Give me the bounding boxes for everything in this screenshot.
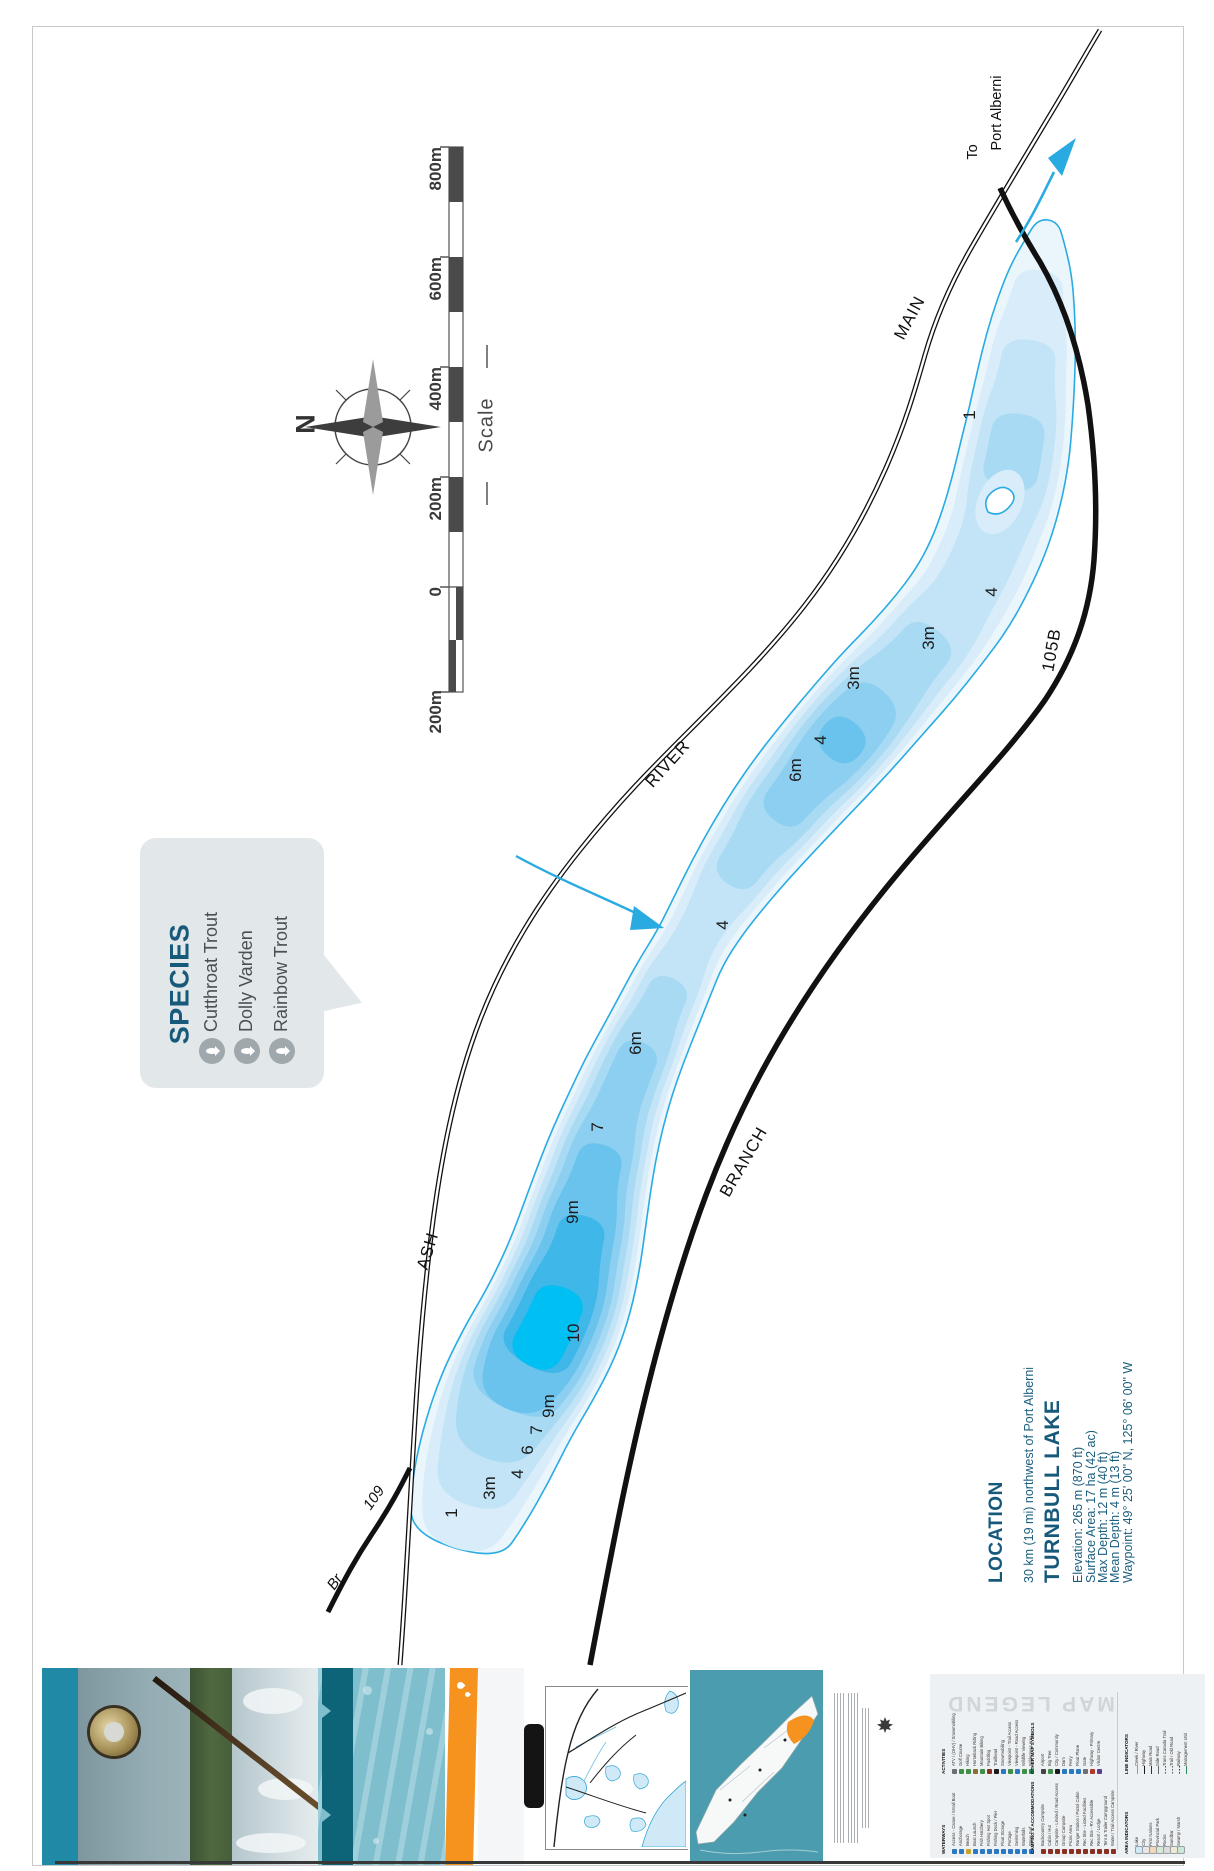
legend-item: Water / Trail Access Campsite bbox=[1110, 1775, 1117, 1855]
scale-tick-label: 400m bbox=[426, 367, 446, 410]
legend-item-icon bbox=[1165, 1766, 1167, 1774]
legend-item: Viewpoint - Road Access bbox=[1014, 1695, 1021, 1775]
legend-item-label: Backcountry Campsite bbox=[1040, 1804, 1045, 1846]
dmap-great-central-lake bbox=[642, 1781, 686, 1847]
legend-item: Fishing Dock / Pier bbox=[993, 1775, 1000, 1855]
legend-item: Picnic Area bbox=[1068, 1775, 1075, 1855]
cloud bbox=[243, 1688, 303, 1714]
legend-item-label: Lake bbox=[1134, 1837, 1139, 1846]
legend-item: Creek / River bbox=[1134, 1695, 1141, 1775]
legend-item-icon bbox=[987, 1769, 992, 1774]
legend-item-icon bbox=[1097, 1769, 1102, 1774]
legend-item-label: Swamp / Marsh bbox=[1176, 1817, 1181, 1846]
legend-item-label: Mountain Biking bbox=[979, 1736, 984, 1766]
legend-item-icon bbox=[1144, 1766, 1146, 1774]
legend-item-icon bbox=[1177, 1846, 1185, 1854]
legend-item: Tent & Trailer Campground bbox=[1103, 1775, 1110, 1855]
legend-item-icon bbox=[973, 1769, 978, 1774]
legend-item-label: Picnic Area bbox=[1068, 1825, 1073, 1846]
scale-label: Scale bbox=[476, 397, 499, 452]
legend-item-icon bbox=[1022, 1849, 1027, 1854]
legend-item: Highway - Primary bbox=[1089, 1695, 1096, 1775]
legend-section-header: CAMPING & ACCOMMODATIONS bbox=[1030, 1775, 1040, 1855]
legend-item-label: Hiking bbox=[965, 1754, 970, 1766]
photo-treeline bbox=[190, 1668, 232, 1865]
dmap-moran-lake bbox=[665, 1691, 679, 1713]
fish-icon bbox=[269, 1038, 295, 1064]
legend-item: Main Road bbox=[1148, 1695, 1155, 1775]
legend-item-label: Trailhead bbox=[993, 1749, 998, 1766]
disclaimer-text-block bbox=[834, 1693, 845, 1843]
legend-section-header: WATERWAYS bbox=[941, 1775, 951, 1855]
dmap-dickson-lake bbox=[634, 1774, 649, 1789]
legend-item: Horseback Riding bbox=[972, 1695, 979, 1775]
legend-item-label: Access - Canoe / Small Boat bbox=[951, 1793, 956, 1846]
scale-tick-label: 200m bbox=[426, 690, 446, 733]
outlet-arrow-icon bbox=[1048, 138, 1076, 176]
legend-item-label: Beach bbox=[965, 1834, 970, 1846]
legend-item-icon bbox=[1151, 1766, 1153, 1774]
legend-item-label: ATV / (OHV) / Snowmobiling bbox=[951, 1713, 956, 1766]
legend-item-label: Campsite - Limited / Road Access bbox=[1054, 1783, 1059, 1846]
legend-item-icon bbox=[1090, 1849, 1095, 1854]
legend-item-icon bbox=[1179, 1766, 1181, 1774]
legend-item-icon bbox=[973, 1849, 978, 1854]
species-item: Dolly Varden bbox=[230, 852, 264, 1064]
maple-leaf-icon bbox=[876, 1716, 894, 1734]
legend-item-label: Gate bbox=[1082, 1757, 1087, 1766]
legend-item-label: Visitor Centre bbox=[1096, 1741, 1101, 1766]
inlet-arrow-icon bbox=[630, 906, 664, 930]
legend-item-label: Water / Trail Access Campsite bbox=[1110, 1790, 1115, 1846]
legend-item-icon bbox=[952, 1849, 957, 1854]
species-name: Dolly Varden bbox=[236, 930, 257, 1032]
dmap-ash-lake bbox=[606, 1766, 621, 1781]
legend-item: Rocks bbox=[1162, 1775, 1169, 1855]
legend-item-icon bbox=[1104, 1849, 1109, 1854]
legend-item: Fishing Hot Spot bbox=[986, 1775, 993, 1855]
legend-item-label: Tent & Trailer Campground bbox=[1103, 1796, 1108, 1846]
legend-item-label: Resort / Lodge bbox=[1096, 1819, 1101, 1846]
depth-sounding-label: 6m bbox=[626, 1031, 646, 1055]
legend-item: Boat Launch bbox=[972, 1775, 979, 1855]
droplet-icon bbox=[464, 1691, 471, 1698]
legend-item: Swamp / Marsh bbox=[1176, 1775, 1183, 1855]
legend-item: Float Plane bbox=[1075, 1695, 1082, 1775]
legend-item-icon bbox=[1015, 1769, 1020, 1774]
species-title: SPECIES bbox=[165, 924, 196, 1045]
legend-item: Trail / Old Road bbox=[1169, 1695, 1176, 1775]
legend-item-label: Swimming bbox=[1014, 1827, 1019, 1846]
legend-item-label: Highway - Primary bbox=[1089, 1732, 1094, 1766]
legend-item: Float Storage bbox=[1000, 1775, 1007, 1855]
legend-item-label: Portage bbox=[1007, 1831, 1012, 1846]
depth-sounding-label: 4 bbox=[713, 920, 733, 929]
directions-mini-map bbox=[545, 1686, 689, 1850]
legend-item-label: Ranger Station / Patrol Cabin bbox=[1075, 1792, 1080, 1846]
legend-item: Fish Hatchery bbox=[979, 1775, 986, 1855]
droplet-icon bbox=[456, 1681, 466, 1691]
legend-item-icon bbox=[1097, 1849, 1102, 1854]
legend-item-label: Railway bbox=[1176, 1751, 1181, 1766]
legend-section: AREA INDICATORSLakeCityFirst NationsProv… bbox=[1124, 1775, 1183, 1855]
legend-item-icon bbox=[1186, 1766, 1188, 1774]
legend-item: Backcountry Campsite bbox=[1040, 1775, 1047, 1855]
legend-divider bbox=[1117, 1692, 1118, 1850]
legend-item-icon bbox=[1083, 1769, 1088, 1774]
depth-sounding-label: 1 bbox=[960, 410, 980, 419]
legend-item-label: City / Community bbox=[1054, 1734, 1059, 1766]
legend-item-icon bbox=[1048, 1849, 1053, 1854]
legend-item: Paddling bbox=[986, 1695, 993, 1775]
legend-item-icon bbox=[966, 1769, 971, 1774]
species-name: Rainbow Trout bbox=[271, 916, 292, 1032]
legend-item: Mountain Biking bbox=[979, 1695, 986, 1775]
depth-sounding-label: 3m bbox=[480, 1476, 500, 1500]
legend-item: Anchorage bbox=[958, 1775, 965, 1855]
legend-item: Portage bbox=[1007, 1775, 1014, 1855]
legend-item-label: City bbox=[1141, 1839, 1146, 1846]
legend-item: First Nations bbox=[1148, 1775, 1155, 1855]
legend-item-icon bbox=[1041, 1769, 1046, 1774]
depth-sounding-label: 4 bbox=[982, 587, 1002, 596]
cover-photo bbox=[78, 1668, 318, 1865]
legend-item-icon bbox=[1022, 1769, 1027, 1774]
legend-item-label: Big Tree bbox=[1047, 1750, 1052, 1766]
legend-item-icon bbox=[959, 1769, 964, 1774]
road-label: Port Alberni bbox=[989, 76, 1005, 151]
legend-item-label: Anchorage bbox=[958, 1826, 963, 1846]
legend-item: Beach bbox=[965, 1775, 972, 1855]
legend-item: Railway bbox=[1176, 1695, 1183, 1775]
fish-icon bbox=[234, 1038, 260, 1064]
disclaimer-text-block bbox=[862, 1708, 870, 1828]
legend-item: ATV / (OHV) / Snowmobiling bbox=[951, 1695, 958, 1775]
legend-item-icon bbox=[1048, 1769, 1053, 1774]
compass-rose-icon bbox=[305, 359, 441, 495]
depth-sounding-label: 1 bbox=[442, 1508, 462, 1517]
legend-item-icon bbox=[952, 1769, 957, 1774]
legend-item-label: Waterfalls bbox=[1021, 1828, 1026, 1846]
legend-item-icon bbox=[1158, 1766, 1160, 1774]
scale-tick-label: 200m bbox=[426, 477, 446, 520]
legend-item-label: Airport bbox=[1040, 1754, 1045, 1766]
disclaimer-text-block bbox=[848, 1693, 859, 1843]
legend-item-label: Horseback Riding bbox=[972, 1733, 977, 1766]
legend-item: Gate bbox=[1082, 1695, 1089, 1775]
legend-item: Viewpoint - Trail Access bbox=[1007, 1695, 1014, 1775]
legend-item-icon bbox=[1069, 1769, 1074, 1774]
legend-item: Management Unit bbox=[1183, 1695, 1190, 1775]
legend-item-label: Float Storage bbox=[1000, 1821, 1005, 1846]
legend-item: Access - Canoe / Small Boat bbox=[951, 1775, 958, 1855]
legend-item: Sandbar bbox=[1169, 1775, 1176, 1855]
north-label: N bbox=[291, 414, 322, 434]
legend-item-label: Snowmobiling bbox=[1000, 1740, 1005, 1766]
depth-sounding-label: 6m bbox=[786, 758, 806, 782]
legend-item: City / Community bbox=[1054, 1695, 1061, 1775]
legend-item: Rec Site - Listed Facilities bbox=[1082, 1775, 1089, 1855]
legend-section-header: OTHER MAP SYMBOLS bbox=[1030, 1695, 1040, 1775]
legend-item-icon bbox=[1001, 1849, 1006, 1854]
legend-item-label: Rec Site - RV Accessible bbox=[1089, 1800, 1094, 1846]
legend-item-icon bbox=[1008, 1769, 1013, 1774]
inlet-creek bbox=[516, 856, 642, 916]
scale-tick-label: 600m bbox=[426, 257, 446, 300]
legend-item-icon bbox=[987, 1849, 992, 1854]
depth-sounding-label: 7 bbox=[527, 1425, 547, 1434]
legend-item: Big Tree bbox=[1047, 1695, 1054, 1775]
scale-tick-label: 0 bbox=[426, 587, 446, 596]
road-label: To bbox=[965, 144, 981, 159]
fishing-reel bbox=[90, 1708, 138, 1756]
legend-item: Highway bbox=[1141, 1695, 1148, 1775]
legend-item-label: Boat Launch bbox=[972, 1822, 977, 1846]
legend-item-label: Main Road bbox=[1148, 1746, 1153, 1766]
band-notch bbox=[322, 1704, 331, 1718]
legend-item-label: First Nations bbox=[1148, 1822, 1153, 1846]
legend-item-icon bbox=[1076, 1769, 1081, 1774]
dmap-road-south bbox=[566, 1787, 646, 1813]
scale-tick-label: 800m bbox=[426, 147, 446, 190]
legend-item: Dam bbox=[1061, 1695, 1068, 1775]
fishing-chart-page: N Scale 800m600m400m200m0200m 13m4679m10… bbox=[0, 0, 1214, 1871]
legend-section: WATERWAYSAccess - Canoe / Small BoatAnch… bbox=[941, 1775, 1035, 1855]
cover-edge-band bbox=[42, 1668, 78, 1865]
legend-item: Ferry bbox=[1068, 1695, 1075, 1775]
legend-section: OTHER MAP SYMBOLSAirportBig TreeCity / C… bbox=[1030, 1695, 1103, 1775]
legend-item-icon bbox=[1062, 1849, 1067, 1854]
legend-item: Cabin / Hut bbox=[1047, 1775, 1054, 1855]
legend-item-label: Wildlife Viewing bbox=[1021, 1737, 1026, 1766]
legend-item-icon bbox=[1111, 1849, 1116, 1854]
legend-item-label: Ferry bbox=[1068, 1756, 1073, 1766]
legend-item-label: Rec Site - Listed Facilities bbox=[1082, 1798, 1087, 1846]
legend-item: Airport bbox=[1040, 1695, 1047, 1775]
legend-section-header: LINE INDICATORS bbox=[1124, 1695, 1134, 1775]
legend-item-icon bbox=[1090, 1769, 1095, 1774]
legend-item-label: Provincial Park bbox=[1155, 1818, 1160, 1846]
legend-item: Trailhead bbox=[993, 1695, 1000, 1775]
legend-item-label: Viewpoint - Road Access bbox=[1014, 1720, 1019, 1766]
legend-item: Golf Course bbox=[958, 1695, 965, 1775]
species-item: Cutthroat Trout bbox=[195, 852, 229, 1064]
legend-section: ACTIVITIESATV / (OHV) / SnowmobilingGolf… bbox=[941, 1695, 1035, 1775]
legend-item: Wildlife Viewing bbox=[1021, 1695, 1028, 1775]
legend-item-label: Management Unit bbox=[1183, 1733, 1188, 1766]
legend-item-icon bbox=[980, 1849, 985, 1854]
cloud bbox=[236, 1833, 306, 1853]
legend-item-label: Rocks bbox=[1162, 1834, 1167, 1846]
legend-item-icon bbox=[959, 1849, 964, 1854]
depth-sounding-label: 7 bbox=[588, 1122, 608, 1131]
strip-bottom-edge bbox=[55, 1861, 1185, 1864]
legend-item-label: Trans Canada Trail bbox=[1162, 1731, 1167, 1766]
legend-item: Visitor Centre bbox=[1096, 1695, 1103, 1775]
legend-item-label: Paddling bbox=[986, 1750, 991, 1766]
legend-item-label: Float Plane bbox=[1075, 1745, 1080, 1766]
legend-item-icon bbox=[994, 1769, 999, 1774]
depth-sounding-label: 4 bbox=[508, 1469, 528, 1478]
legend-section: LINE INDICATORSCreek / RiverHighwayMain … bbox=[1124, 1695, 1190, 1775]
legend-item-label: Golf Course bbox=[958, 1744, 963, 1766]
legend-item: Resort / Lodge bbox=[1096, 1775, 1103, 1855]
species-name: Cutthroat Trout bbox=[201, 912, 222, 1032]
depth-sounding-label: 9m bbox=[539, 1394, 559, 1418]
legend-item-icon bbox=[994, 1849, 999, 1854]
legend-item-icon bbox=[1172, 1766, 1174, 1774]
legend-item-label: Highway bbox=[1141, 1750, 1146, 1766]
legend-item: Group Campsite bbox=[1061, 1775, 1068, 1855]
legend-item-icon bbox=[1001, 1769, 1006, 1774]
dmap-lowry-lake bbox=[630, 1818, 646, 1832]
legend-item-icon bbox=[1076, 1849, 1081, 1854]
legend-item: City bbox=[1141, 1775, 1148, 1855]
legend-item-label: Dam bbox=[1061, 1757, 1066, 1766]
legend-item-icon bbox=[1055, 1849, 1060, 1854]
legend-item: Ranger Station / Patrol Cabin bbox=[1075, 1775, 1082, 1855]
legend-item-label: Sandbar bbox=[1169, 1830, 1174, 1846]
legend-item-icon bbox=[1083, 1849, 1088, 1854]
legend-item-icon bbox=[1008, 1849, 1013, 1854]
legend-item-icon bbox=[966, 1849, 971, 1854]
directions-pill bbox=[524, 1724, 544, 1808]
depth-sounding-label: 6 bbox=[518, 1445, 538, 1454]
legend-item-icon bbox=[1055, 1769, 1060, 1774]
species-item: Rainbow Trout bbox=[265, 852, 299, 1064]
legend-item: Lake bbox=[1134, 1775, 1141, 1855]
legend-item: Provincial Park bbox=[1155, 1775, 1162, 1855]
bubble bbox=[363, 1686, 372, 1695]
legend-item: Rec Site - RV Accessible bbox=[1089, 1775, 1096, 1855]
lake-bathymetry bbox=[411, 220, 1075, 1554]
legend-item-label: Fish Hatchery bbox=[979, 1820, 984, 1846]
legend-item-icon bbox=[1062, 1769, 1067, 1774]
legend-item-label: Fishing Hot Spot bbox=[986, 1815, 991, 1846]
legend-section-header: AREA INDICATORS bbox=[1124, 1775, 1134, 1855]
legend-item: Trans Canada Trail bbox=[1162, 1695, 1169, 1775]
depth-sounding-label: 4 bbox=[811, 735, 831, 744]
legend-item-label: Trail / Old Road bbox=[1169, 1737, 1174, 1766]
legend-item: Hiking bbox=[965, 1695, 972, 1775]
dmap-lois-lake bbox=[584, 1816, 600, 1828]
cover-title-band bbox=[322, 1668, 353, 1865]
legend-item-label: Side Road bbox=[1155, 1746, 1160, 1766]
legend-item: Side Road bbox=[1155, 1695, 1162, 1775]
legend-item-label: Creek / River bbox=[1134, 1742, 1139, 1766]
cover-panel bbox=[318, 1668, 445, 1865]
depth-sounding-label: 3m bbox=[919, 626, 939, 650]
legend-item-icon bbox=[980, 1769, 985, 1774]
region-inset-panel bbox=[688, 1668, 825, 1865]
legend-item-label: Viewpoint - Trail Access bbox=[1007, 1722, 1012, 1766]
fish-icon bbox=[199, 1038, 225, 1064]
legend-item-icon bbox=[1015, 1849, 1020, 1854]
legend-item: Snowmobiling bbox=[1000, 1695, 1007, 1775]
legend-item-icon bbox=[1137, 1766, 1139, 1774]
bubble bbox=[373, 1838, 379, 1844]
legend-item-label: Cabin / Hut bbox=[1047, 1825, 1052, 1846]
legend-section: CAMPING & ACCOMMODATIONSBackcountry Camp… bbox=[1030, 1775, 1117, 1855]
band-notch bbox=[322, 1808, 331, 1822]
water-resistant-banner bbox=[445, 1668, 478, 1865]
bubble bbox=[426, 1728, 433, 1735]
publisher-panel bbox=[478, 1668, 524, 1865]
legend-item: Waterfalls bbox=[1021, 1775, 1028, 1855]
legend-item-icon bbox=[1041, 1849, 1046, 1854]
depth-sounding-label: 10 bbox=[564, 1324, 584, 1343]
legend-item: Campsite - Limited / Road Access bbox=[1054, 1775, 1061, 1855]
legend-item: Swimming bbox=[1014, 1775, 1021, 1855]
depth-sounding-label: 3m bbox=[844, 666, 864, 690]
depth-sounding-label: 9m bbox=[563, 1200, 583, 1224]
legend-item-label: Fishing Dock / Pier bbox=[993, 1811, 998, 1846]
legend-item-icon bbox=[1069, 1849, 1074, 1854]
legend-item-label: Group Campsite bbox=[1061, 1816, 1066, 1847]
legend-section-header: ACTIVITIES bbox=[941, 1695, 951, 1775]
